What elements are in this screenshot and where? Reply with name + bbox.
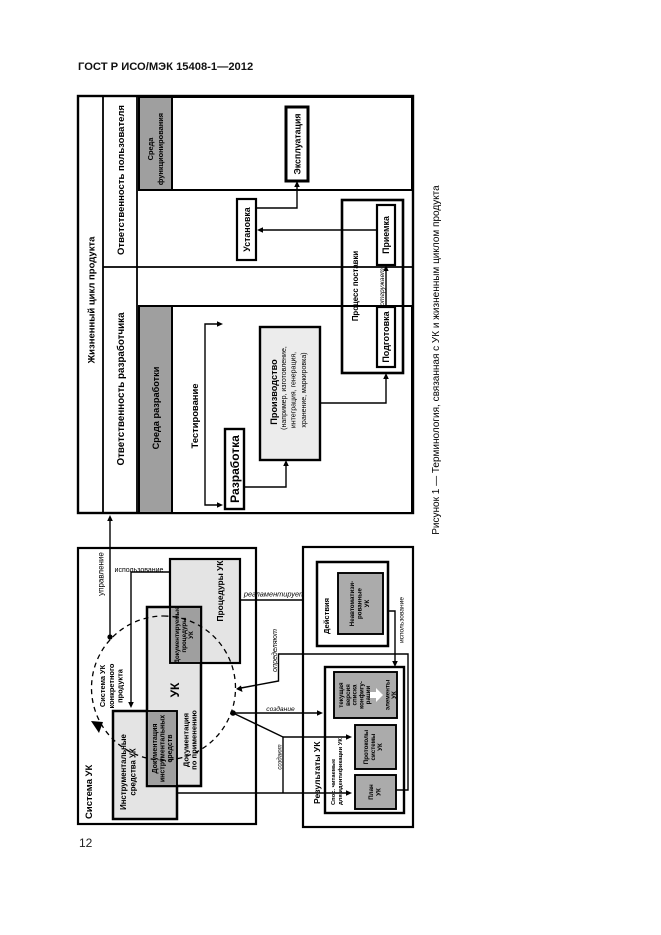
svg-text:Система УК: Система УК xyxy=(98,664,107,707)
svg-text:Результаты УК: Результаты УК xyxy=(312,741,322,804)
svg-text:(например, изготовление,: (например, изготовление, xyxy=(281,346,288,430)
svg-text:Установка: Установка xyxy=(242,207,252,252)
svg-text:Подготовка: Подготовка xyxy=(381,310,391,362)
svg-text:Среда: Среда xyxy=(146,137,155,161)
svg-text:регламентирует: регламентирует xyxy=(243,590,305,599)
svg-text:УК: УК xyxy=(364,599,371,607)
svg-text:для идентификации УК: для идентификации УК xyxy=(337,738,344,805)
svg-text:использование: использование xyxy=(399,597,406,643)
svg-text:использование: использование xyxy=(115,567,164,574)
svg-text:рованные: рованные xyxy=(357,587,364,618)
svg-text:функционирования: функционирования xyxy=(156,113,165,185)
svg-text:Эксплуатация: Эксплуатация xyxy=(293,113,303,174)
svg-text:по применению: по применению xyxy=(190,710,199,770)
svg-text:Жизненный цикл продукта: Жизненный цикл продукта xyxy=(87,236,98,365)
svg-text:План: План xyxy=(368,784,375,800)
svg-text:Среда разработки: Среда разработки xyxy=(151,366,161,449)
svg-text:УК: УК xyxy=(168,682,182,697)
svg-text:Спос. читаемые: Спос. читаемые xyxy=(331,758,337,805)
svg-text:средств: средств xyxy=(167,734,174,763)
svg-text:Рисунок 1 — Терминология, связ: Рисунок 1 — Терминология, связанная с УК… xyxy=(431,185,442,535)
svg-text:создание: создание xyxy=(266,705,295,713)
svg-text:Документируемые: Документируемые xyxy=(174,606,181,664)
svg-text:инструментальных: инструментальных xyxy=(160,715,167,782)
svg-text:Приемка: Приемка xyxy=(381,216,391,254)
svg-text:УК: УК xyxy=(391,691,398,699)
svg-text:хранение, маркировка): хранение, маркировка) xyxy=(301,352,308,427)
svg-text:управление: управление xyxy=(97,552,106,596)
svg-text:создают: создают xyxy=(278,744,284,769)
svg-text:Неавтоматизи-: Неавтоматизи- xyxy=(349,581,356,626)
svg-text:Система УК: Система УК xyxy=(84,764,95,819)
svg-text:Процесс поставки: Процесс поставки xyxy=(351,251,360,322)
svg-text:Протоколы: Протоколы xyxy=(363,730,370,764)
svg-text:УК: УК xyxy=(376,788,383,796)
svg-text:продукта: продукта xyxy=(116,668,125,703)
svg-text:Ответственность разработчика: Ответственность разработчика xyxy=(116,312,127,466)
svg-text:интеграция, генерация,: интеграция, генерация, xyxy=(291,352,298,428)
svg-text:системы: системы xyxy=(370,734,377,761)
svg-text:Процедуры УК: Процедуры УК xyxy=(215,560,225,622)
svg-text:процедуры: процедуры xyxy=(181,618,188,653)
svg-text:Действия: Действия xyxy=(322,598,331,634)
svg-text:Производство: Производство xyxy=(269,359,279,425)
svg-text:определяют: определяют xyxy=(270,629,279,672)
svg-text:УК: УК xyxy=(188,631,195,639)
svg-text:УК: УК xyxy=(377,743,384,751)
svg-text:Тестирование: Тестирование xyxy=(189,384,200,449)
svg-text:Разработка: Разработка xyxy=(228,435,242,503)
svg-text:Документация: Документация xyxy=(152,724,159,774)
svg-text:Ответственность пользователя: Ответственность пользователя xyxy=(116,105,127,255)
svg-text:отгружает: отгружает xyxy=(379,268,386,306)
